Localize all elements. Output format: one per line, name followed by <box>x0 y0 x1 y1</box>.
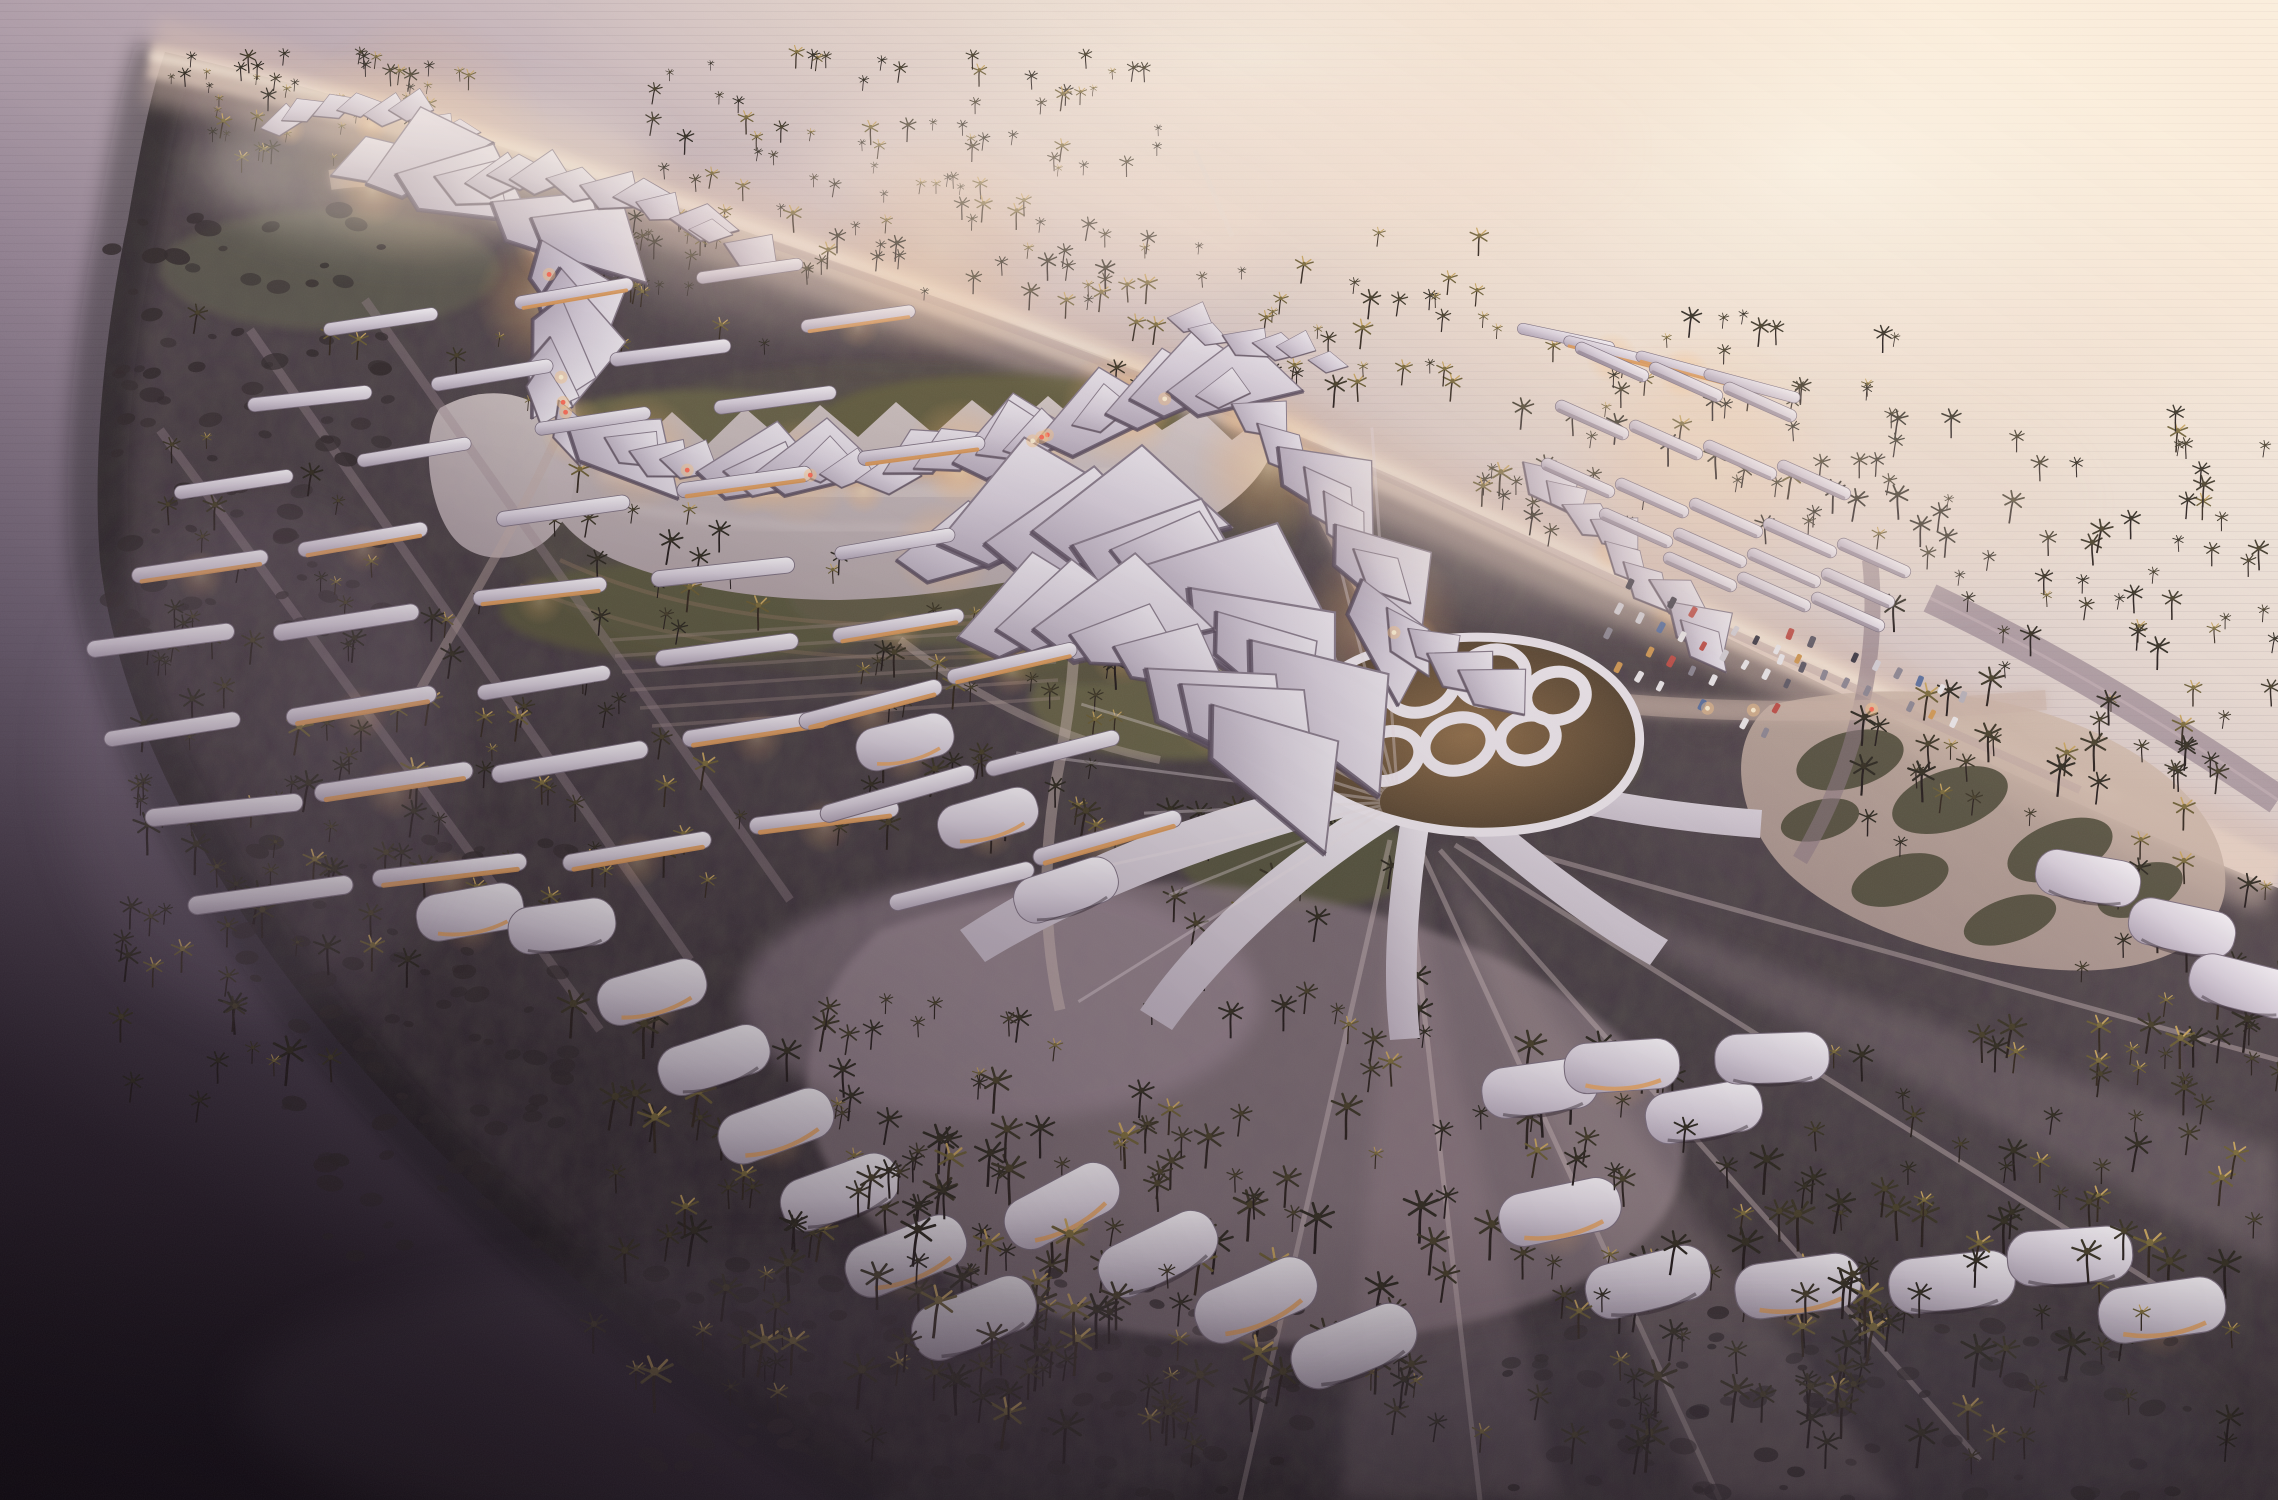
resort-masterplan-rendering <box>0 0 2278 1500</box>
film-grain <box>0 0 2278 1500</box>
rendering-canvas <box>0 0 2278 1500</box>
